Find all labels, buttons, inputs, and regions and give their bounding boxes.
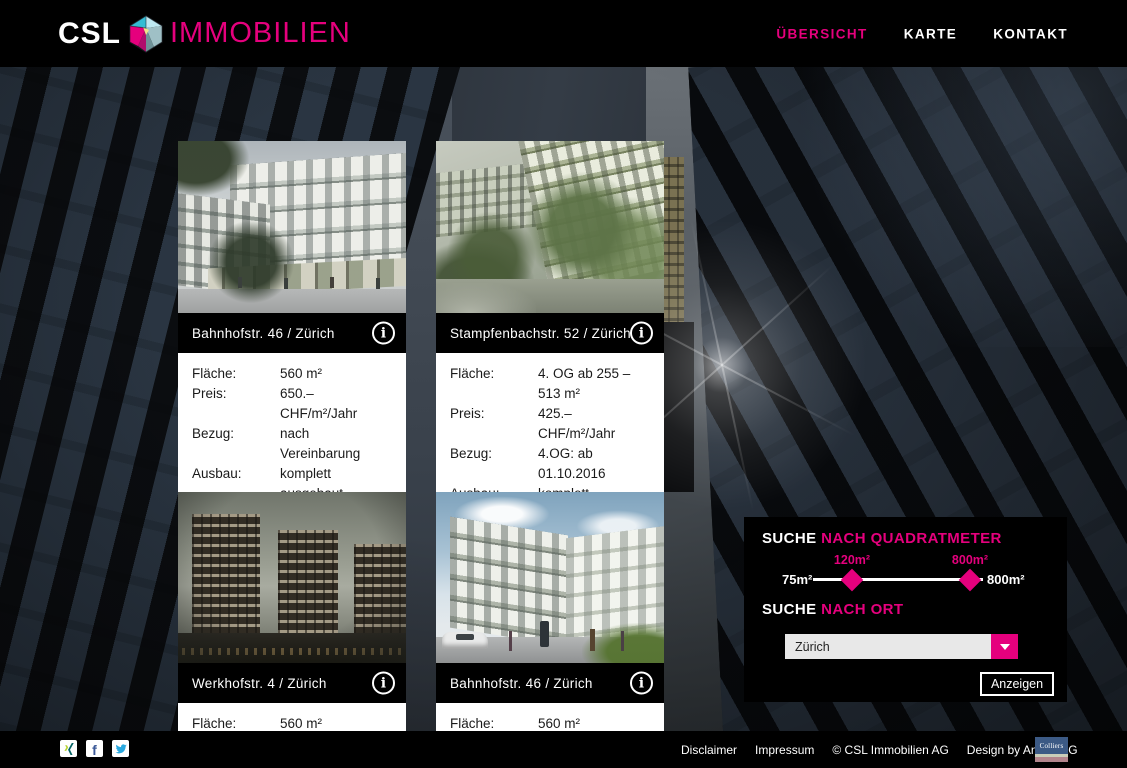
dropdown-button[interactable] [991, 634, 1018, 659]
slider-handle-low[interactable] [841, 569, 864, 592]
footer-copyright: © CSL Immobilien AG [832, 743, 948, 757]
page: CSL IMMOBILIEN ÜBERSICHT KARTE KONTAKT [0, 0, 1127, 768]
detail-label: Bezug: [192, 424, 280, 464]
anzeigen-button[interactable]: Anzeigen [980, 672, 1054, 696]
detail-value: 4.OG: ab 01.10.2016 [538, 444, 650, 484]
search-title-pink: NACH ORT [821, 601, 903, 618]
colliers-logo-text: Colliers [1035, 737, 1068, 754]
card-details: Fläche: 560 m² Preis: 650.– CHF/m²/Jahr … [178, 353, 406, 515]
property-card[interactable]: Bahnhofstr. 46 / Zürich i Fläche: 560 m² [436, 492, 664, 768]
slider-min-label: 75m² [782, 572, 812, 587]
photo-decoration [238, 277, 242, 288]
search-title-white: SUCHE [762, 601, 817, 618]
detail-row: Preis: 425.– CHF/m²/Jahr [450, 404, 650, 444]
logo-cube-icon [126, 14, 166, 54]
detail-row: Fläche: 560 m² [192, 364, 392, 384]
header: CSL IMMOBILIEN ÜBERSICHT KARTE KONTAKT [0, 0, 1127, 67]
search-title-white: SUCHE [762, 530, 817, 547]
nav-uebersicht[interactable]: ÜBERSICHT [776, 26, 867, 41]
slider-high-value: 800m² [942, 553, 998, 567]
photo-decoration [522, 169, 642, 289]
photo-decoration [540, 621, 549, 647]
social-icons: f [60, 740, 129, 757]
property-photo [436, 492, 664, 663]
card-title-bar: Stampfenbachstr. 52 / Zürich i [436, 313, 664, 353]
card-address: Werkhofstr. 4 / Zürich [192, 676, 367, 691]
card-title-bar: Bahnhofstr. 46 / Zürich i [436, 663, 664, 703]
detail-value: 4. OG ab 255 – 513 m² [538, 364, 650, 404]
xing-icon[interactable] [60, 740, 77, 757]
photo-decoration [456, 634, 474, 640]
detail-row: Bezug: 4.OG: ab 01.10.2016 [450, 444, 650, 484]
search-title-ort: SUCHE NACH ORT [762, 601, 903, 618]
footer-link-impressum[interactable]: Impressum [755, 743, 814, 757]
detail-row: Preis: 650.– CHF/m²/Jahr [192, 384, 392, 424]
slider-max-label: 800m² [987, 572, 1025, 587]
photo-decoration [582, 623, 664, 663]
detail-label: Preis: [450, 404, 538, 444]
card-title-bar: Bahnhofstr. 46 / Zürich i [178, 313, 406, 353]
logo-csl-text: CSL [58, 17, 121, 51]
colliers-logo[interactable]: Colliers [1035, 737, 1068, 762]
photo-decoration [436, 283, 536, 313]
photo-decoration [206, 219, 296, 305]
footer-link-disclaimer[interactable]: Disclaimer [681, 743, 737, 757]
location-dropdown[interactable]: Zürich [785, 634, 1018, 659]
colliers-logo-stripe [1035, 757, 1068, 762]
info-icon[interactable]: i [372, 322, 395, 345]
property-photo [436, 141, 664, 313]
photo-decoration [178, 492, 406, 663]
detail-value: nach Vereinbarung [280, 424, 392, 464]
property-card[interactable]: Stampfenbachstr. 52 / Zürich i Fläche: 4… [436, 141, 664, 535]
info-icon[interactable]: i [630, 322, 653, 345]
facebook-glyph: f [92, 743, 97, 757]
search-panel: SUCHE NACH QUADRATMETER 75m² 120m² 800m²… [744, 517, 1067, 702]
chevron-down-icon [1000, 644, 1010, 650]
detail-label: Fläche: [450, 364, 538, 404]
logo-immobilien-text: IMMOBILIEN [170, 17, 351, 50]
property-photo [178, 141, 406, 313]
facebook-icon[interactable]: f [86, 740, 103, 757]
info-icon[interactable]: i [372, 672, 395, 695]
detail-label: Preis: [192, 384, 280, 424]
search-title-quadratmeter: SUCHE NACH QUADRATMETER [762, 530, 1002, 547]
nav-karte[interactable]: KARTE [904, 26, 958, 41]
footer-links: Disclaimer Impressum © CSL Immobilien AG… [681, 743, 1078, 757]
detail-row: Fläche: 4. OG ab 255 – 513 m² [450, 364, 650, 404]
logo[interactable]: CSL IMMOBILIEN [58, 14, 351, 54]
card-address: Stampfenbachstr. 52 / Zürich [450, 326, 650, 341]
property-photo [178, 492, 406, 663]
main-nav: ÜBERSICHT KARTE KONTAKT [776, 26, 1068, 41]
property-card[interactable]: Bahnhofstr. 46 / Zürich i Fläche: 560 m²… [178, 141, 406, 515]
info-icon[interactable]: i [630, 672, 653, 695]
detail-row: Bezug: nach Vereinbarung [192, 424, 392, 464]
slider-handle-high[interactable] [959, 569, 982, 592]
nav-kontakt[interactable]: KONTAKT [993, 26, 1068, 41]
detail-value: 560 m² [280, 364, 322, 384]
detail-label: Fläche: [192, 364, 280, 384]
footer: f Disclaimer Impressum © CSL Immobilien … [0, 731, 1127, 768]
card-title-bar: Werkhofstr. 4 / Zürich i [178, 663, 406, 703]
detail-label: Bezug: [450, 444, 538, 484]
card-address: Bahnhofstr. 46 / Zürich [450, 676, 633, 691]
photo-decoration [450, 517, 568, 647]
detail-value: 650.– CHF/m²/Jahr [280, 384, 392, 424]
twitter-icon[interactable] [112, 740, 129, 757]
slider-low-value: 120m² [824, 553, 880, 567]
property-card[interactable]: Werkhofstr. 4 / Zürich i Fläche: 560 m² [178, 492, 406, 768]
search-title-pink: NACH QUADRATMETER [821, 530, 1002, 547]
detail-value: 425.– CHF/m²/Jahr [538, 404, 650, 444]
card-address: Bahnhofstr. 46 / Zürich [192, 326, 375, 341]
photo-decoration [178, 141, 250, 197]
location-dropdown-value: Zürich [795, 640, 830, 654]
